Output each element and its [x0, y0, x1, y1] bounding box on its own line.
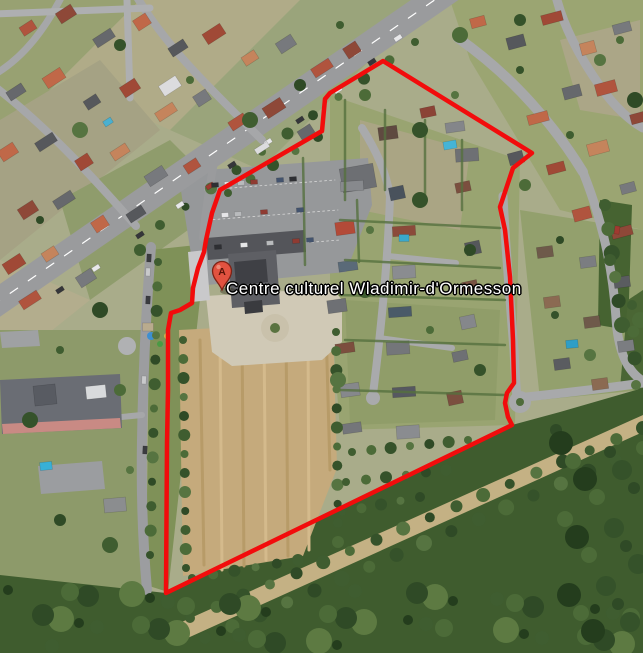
tree: [134, 244, 146, 256]
tree: [152, 281, 162, 291]
tree: [282, 128, 294, 140]
avenue-tree: [498, 499, 514, 515]
house-roof: [392, 265, 416, 280]
plaza-planter: [270, 323, 280, 333]
forest-tree: [264, 632, 286, 653]
avenue-tree: [505, 479, 515, 489]
road: [118, 337, 136, 355]
forest-tree: [419, 617, 433, 631]
field-streak: [264, 334, 266, 560]
tree: [22, 412, 38, 428]
avenue-tree: [450, 500, 462, 512]
tree: [224, 189, 232, 197]
car: [143, 446, 148, 454]
building-roof: [0, 330, 40, 348]
house-roof: [378, 125, 399, 141]
tree: [332, 461, 342, 471]
forest-tree: [581, 619, 605, 643]
tree: [148, 428, 158, 438]
avenue-tree: [445, 525, 457, 537]
tree: [181, 525, 191, 535]
forest-tree: [219, 593, 241, 615]
tree: [412, 122, 428, 138]
forest-tree: [45, 639, 59, 653]
forest-tree: [161, 595, 175, 609]
forest-tree: [590, 604, 600, 614]
forest-tree: [319, 605, 337, 623]
tree: [272, 559, 282, 569]
forest-tree: [261, 607, 271, 617]
house-roof: [591, 377, 608, 390]
forest-tree: [132, 616, 150, 634]
tree: [181, 450, 189, 458]
tree: [584, 349, 596, 361]
car: [260, 210, 267, 215]
tree: [628, 351, 642, 365]
tree: [179, 411, 189, 421]
tree: [114, 39, 126, 51]
house-roof: [327, 298, 348, 314]
forest-tree: [406, 582, 428, 604]
forest-tree: [490, 592, 504, 606]
house-roof: [388, 306, 412, 318]
forest-tree: [522, 596, 544, 618]
orchard-tree: [375, 499, 387, 511]
tree: [146, 501, 156, 511]
car: [296, 208, 303, 213]
forest-tree: [620, 612, 640, 632]
forest-tree: [612, 460, 632, 480]
tree: [126, 466, 134, 474]
forest-tree: [3, 585, 13, 595]
tree: [152, 331, 160, 339]
terrain-layer: [0, 0, 643, 653]
playground: [157, 341, 163, 347]
forest-tree: [581, 547, 597, 563]
tree: [616, 36, 624, 44]
car: [147, 254, 152, 262]
avenue-tree: [316, 555, 330, 569]
forest-tree: [335, 607, 357, 629]
tree: [150, 405, 158, 413]
tree: [308, 110, 318, 120]
tree: [179, 486, 191, 498]
tree: [181, 507, 189, 515]
tree: [179, 336, 187, 344]
house-roof: [388, 185, 405, 201]
forest-tree: [216, 626, 226, 636]
tree: [516, 66, 524, 74]
forest-tree: [435, 619, 453, 637]
tree: [56, 346, 64, 354]
orchard-tree: [348, 448, 356, 456]
forest-tree: [565, 453, 581, 469]
house-roof: [445, 121, 465, 134]
tree: [294, 79, 306, 91]
avenue-tree: [425, 512, 435, 522]
tree: [612, 294, 626, 308]
car: [142, 376, 147, 384]
tree: [601, 222, 615, 236]
tree: [332, 328, 340, 336]
orchard-tree: [366, 445, 376, 455]
tree: [151, 305, 163, 317]
forest-tree: [628, 482, 640, 494]
forest-tree: [119, 581, 145, 607]
tree: [180, 393, 188, 401]
car: [146, 268, 151, 276]
building-roof: [85, 384, 106, 399]
forest-tree: [32, 604, 54, 626]
car: [146, 296, 151, 304]
field-streak: [286, 332, 288, 556]
orchard-tree: [406, 442, 414, 450]
building-roof: [103, 497, 126, 513]
field-streak: [220, 338, 222, 570]
tree: [114, 384, 126, 396]
tree: [178, 354, 188, 364]
tree: [451, 91, 459, 99]
tree: [155, 220, 165, 230]
house-roof: [455, 148, 479, 163]
house-roof: [459, 314, 476, 330]
car: [214, 245, 221, 250]
forest-tree: [612, 598, 624, 610]
car: [240, 243, 247, 248]
building-roof: [244, 300, 263, 314]
avenue-tree: [371, 534, 383, 546]
avenue-tree: [396, 522, 410, 536]
tree: [594, 54, 606, 66]
forest-tree: [589, 489, 605, 505]
car: [211, 183, 218, 188]
tree: [178, 429, 190, 441]
tree: [149, 378, 161, 390]
tree: [186, 76, 194, 84]
tree: [332, 403, 342, 413]
avenue-tree: [530, 467, 542, 479]
car: [614, 226, 620, 235]
house-roof: [396, 425, 420, 440]
tree: [72, 122, 88, 138]
forest-tree: [573, 605, 589, 621]
orchard-tree: [397, 497, 405, 505]
forest-tree: [145, 593, 155, 603]
avenue-tree: [416, 535, 432, 551]
tree: [604, 254, 616, 266]
tree: [146, 551, 154, 559]
forest-tree: [77, 585, 99, 607]
tree: [627, 300, 637, 310]
forest-tree: [549, 431, 573, 455]
tree: [252, 563, 260, 571]
forest-tree: [604, 518, 624, 538]
orchard-tree: [342, 478, 350, 486]
forest-tree: [248, 630, 266, 648]
orchard-tree: [380, 471, 392, 483]
orchard-tree: [415, 492, 425, 502]
forest-tree: [90, 620, 104, 634]
forest-tree: [61, 583, 79, 601]
avenue-tree: [345, 546, 355, 556]
pool: [40, 461, 53, 470]
car: [234, 212, 241, 217]
forest-tree: [596, 576, 616, 596]
orchard-tree: [361, 475, 371, 485]
orchard-tree: [440, 464, 452, 476]
tree: [366, 226, 374, 234]
tree: [464, 244, 476, 256]
car: [276, 178, 283, 183]
forest-tree: [348, 584, 362, 598]
tree: [566, 131, 574, 139]
forest-tree: [573, 467, 597, 491]
forest-tree: [535, 631, 549, 645]
avenue-tree: [554, 477, 568, 491]
tree: [333, 518, 343, 528]
car: [306, 238, 313, 243]
forest-tree: [557, 511, 573, 527]
tree: [228, 565, 240, 577]
forest-tree: [332, 640, 342, 650]
forest-tree: [148, 618, 170, 640]
avenue-tree: [265, 579, 275, 589]
tree: [147, 451, 159, 463]
avenue-tree: [291, 567, 303, 579]
forest-tree: [506, 594, 524, 612]
tree: [180, 543, 192, 555]
tree: [452, 27, 468, 43]
forest-tree: [493, 617, 519, 643]
tree: [333, 443, 341, 451]
forest-tree: [565, 525, 589, 549]
orchard-tree: [385, 442, 397, 454]
house-roof: [536, 245, 553, 258]
forest-tree: [306, 628, 332, 653]
avenue-tree: [585, 445, 595, 455]
tree: [242, 112, 258, 128]
forest-tree: [519, 629, 529, 639]
tree: [292, 554, 304, 566]
tree: [411, 38, 419, 46]
tree: [359, 89, 371, 101]
forest-tree: [177, 597, 195, 615]
field-streak: [308, 330, 309, 550]
tree: [331, 421, 343, 433]
forest-tree: [403, 615, 413, 625]
car: [289, 177, 296, 182]
pin-letter: A: [218, 266, 226, 278]
car: [221, 213, 228, 218]
tree: [150, 355, 160, 365]
tree: [332, 536, 344, 548]
satellite-map[interactable]: A: [0, 0, 643, 653]
tree: [599, 199, 611, 211]
tree: [631, 380, 641, 390]
tree: [516, 398, 524, 406]
house-roof: [579, 255, 596, 268]
tree: [551, 311, 559, 319]
tree: [519, 179, 531, 191]
avenue-tree: [390, 548, 404, 562]
tree: [609, 271, 621, 283]
car: [292, 239, 299, 244]
satellite-map-canvas[interactable]: A Centre culturel Wladimir-d'Ormesson: [0, 0, 643, 653]
house-roof: [617, 339, 634, 352]
house-roof: [583, 315, 600, 328]
tree: [330, 372, 346, 388]
avenue-tree: [528, 490, 540, 502]
tree: [154, 258, 162, 266]
house-roof: [543, 295, 560, 308]
tree: [102, 537, 118, 553]
avenue-tree: [334, 571, 350, 587]
tree: [412, 192, 428, 208]
house-roof: [420, 106, 437, 119]
tree: [331, 479, 343, 491]
tree: [92, 302, 108, 318]
avenue-tree: [476, 488, 490, 502]
avenue-tree: [363, 561, 375, 573]
tree: [556, 236, 564, 244]
playground: [143, 323, 154, 331]
forest-tree: [620, 540, 632, 552]
car: [266, 241, 273, 246]
tree: [331, 346, 341, 356]
avenue-tree: [308, 584, 322, 598]
pool: [566, 339, 579, 348]
avenue-tree: [472, 512, 486, 526]
house-roof: [335, 220, 356, 236]
tree: [145, 525, 157, 537]
tree: [178, 372, 190, 384]
avenue-tree: [199, 632, 211, 644]
tree: [627, 92, 643, 108]
tree: [180, 468, 190, 478]
building-roof: [33, 384, 57, 406]
field-streak: [242, 336, 244, 566]
tree: [336, 21, 344, 29]
tree: [426, 326, 434, 334]
tree: [54, 514, 66, 526]
orchard-tree: [424, 439, 434, 449]
ground-patch: [345, 300, 500, 425]
tree: [182, 564, 190, 572]
forest-tree: [232, 628, 246, 642]
forest-tree: [557, 583, 581, 607]
house-roof: [553, 357, 570, 370]
forest-tree: [74, 618, 84, 628]
car: [250, 180, 257, 185]
road: [366, 391, 380, 405]
tree: [148, 478, 156, 486]
avenue-tree: [281, 596, 293, 608]
tree: [36, 216, 44, 224]
tree: [474, 364, 486, 376]
orchard-tree: [443, 436, 455, 448]
tree: [514, 14, 526, 26]
pool: [399, 235, 409, 242]
house-roof: [340, 180, 364, 192]
forest-tree: [448, 596, 458, 606]
forest-tree: [604, 446, 616, 458]
orchard-tree: [357, 503, 367, 513]
avenue-tree: [610, 433, 622, 445]
place-label: Centre culturel Wladimir-d'Ormesson: [226, 280, 522, 298]
